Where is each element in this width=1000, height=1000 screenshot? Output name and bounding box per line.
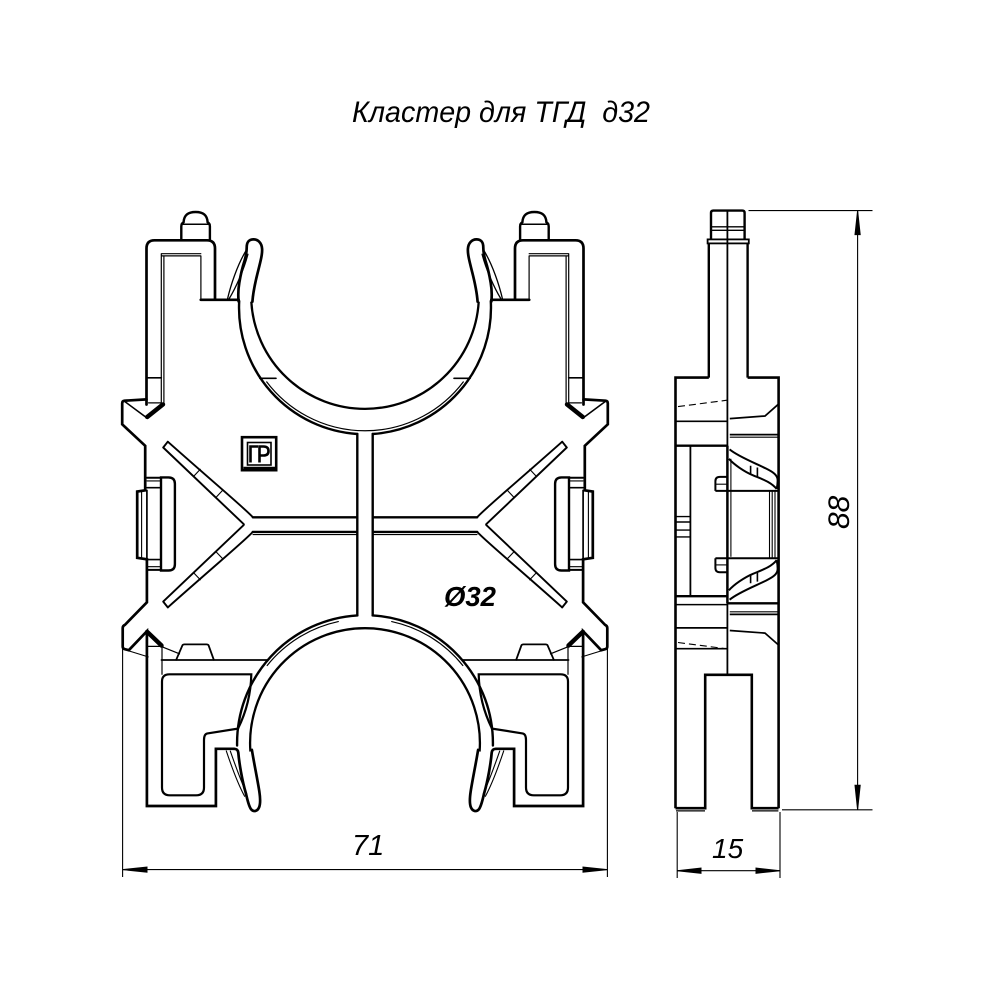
- svg-text:71: 71: [352, 830, 384, 862]
- svg-text:15: 15: [712, 833, 744, 864]
- svg-text:Ø32: Ø32: [444, 581, 497, 612]
- svg-text:Кластер для ТГД д32: Кластер для ТГД д32: [352, 96, 650, 129]
- svg-text:88: 88: [823, 495, 856, 529]
